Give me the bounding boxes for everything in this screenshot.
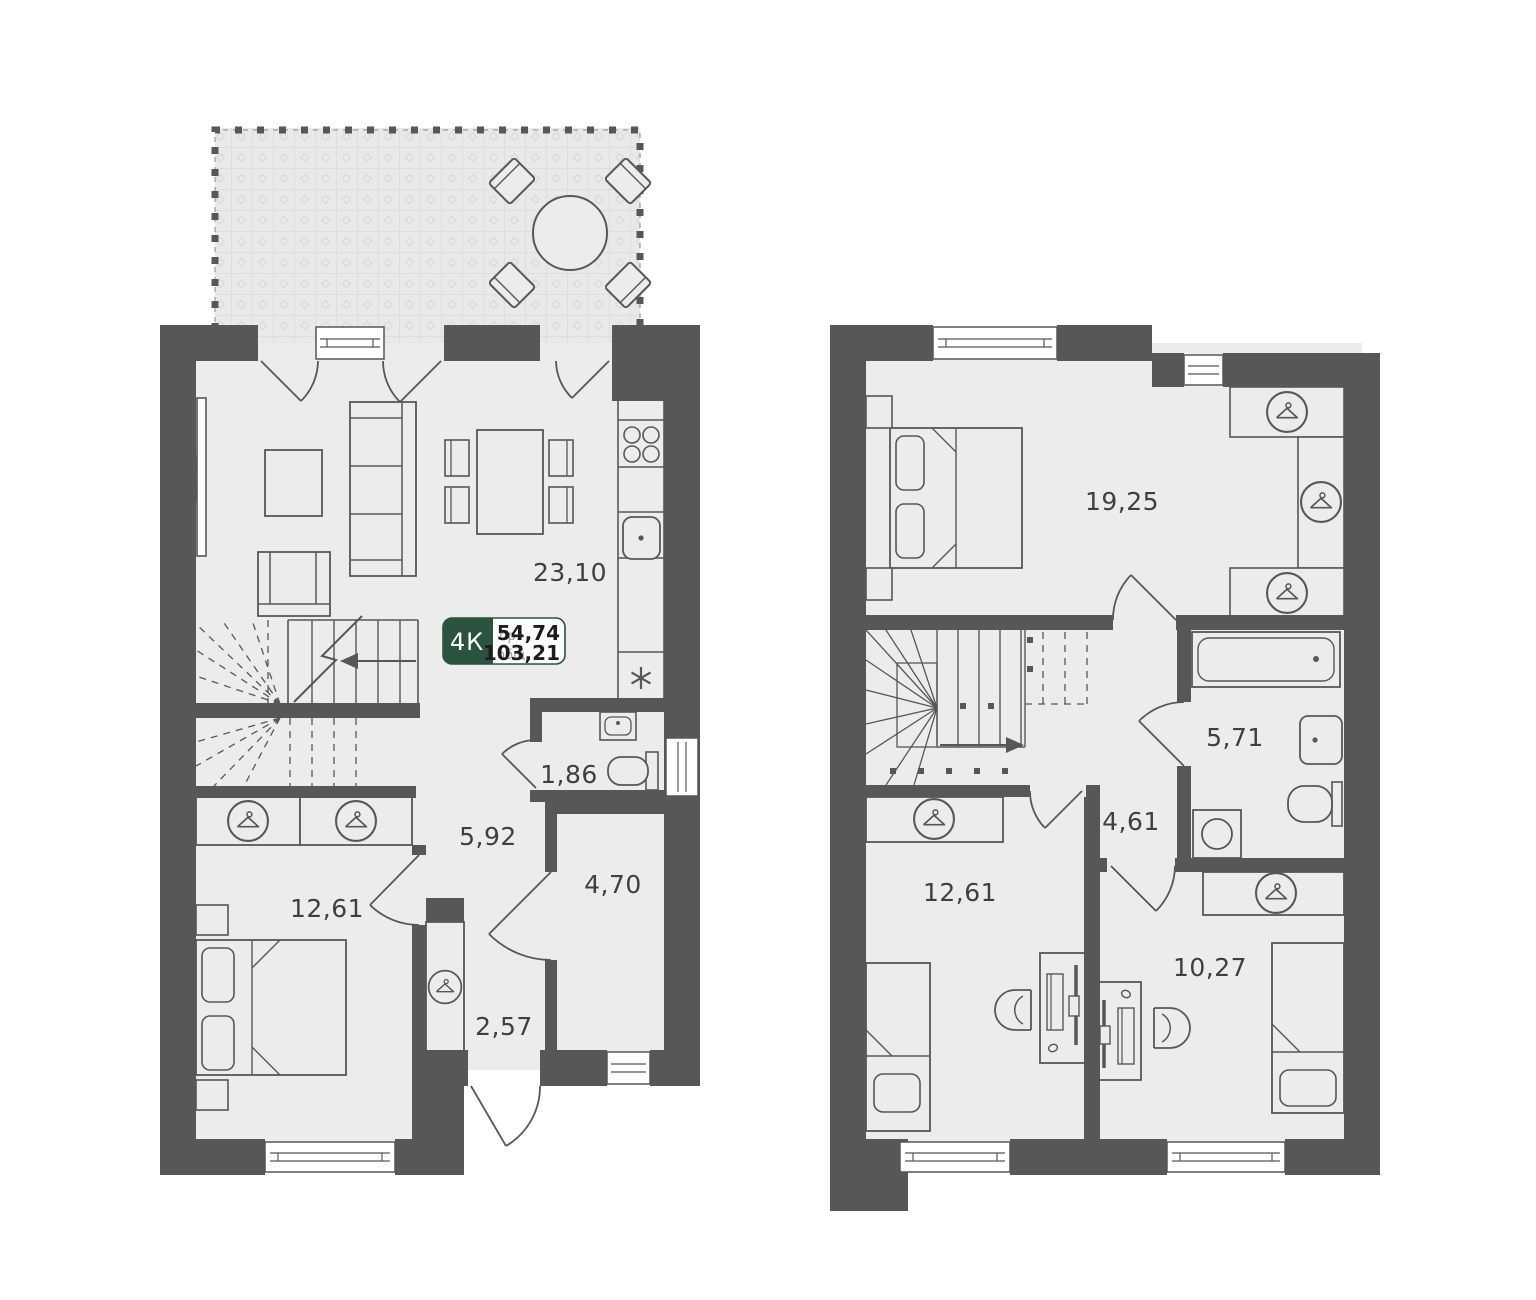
wc-toilet [608,752,658,790]
room-area-label: 19,25 [1085,487,1159,516]
armchair [258,552,330,616]
kitchen-counter [618,382,664,700]
nightstand [196,905,228,935]
wall-stub [426,898,464,922]
desk [1040,953,1087,1063]
kitchen-sink [623,517,660,559]
pillow [896,436,924,490]
bathroom-sink [1300,716,1342,764]
window [1167,1142,1285,1172]
hanger-icon [336,801,376,841]
window [607,1052,650,1084]
wc-sink [600,712,636,740]
badge-total-area: 103,21 [483,641,560,665]
bathtub [1192,632,1340,687]
pillow [202,948,234,1002]
floorplan-canvas: 23,10 1,86 5,92 4,70 2,57 12,61 4К пр. о… [0,0,1536,1300]
nightstand [196,1080,228,1110]
room-area-label: 2,57 [475,1012,533,1041]
hanger-icon [914,799,954,839]
window [900,1142,1010,1172]
nightstand [866,396,892,428]
room-area-label: 4,70 [584,870,642,899]
desk [1096,982,1141,1080]
floor2-plan: 19,25 5,71 4,61 12,61 10,27 [830,325,1380,1211]
tv [196,398,207,556]
floor1-plan: 23,10 1,86 5,92 4,70 2,57 12,61 [160,325,700,1175]
hanger-icon [1267,392,1307,432]
window [1184,355,1223,385]
pillow [1280,1070,1336,1106]
room-area-label: 5,92 [459,822,517,851]
single-bed [866,963,930,1131]
area-badge: 4К пр. общ. 54,74 103,21 [443,618,565,665]
hanger-icon [1267,573,1307,613]
washing-machine [1193,810,1241,858]
floorplan-page: 23,10 1,86 5,92 4,70 2,57 12,61 4К пр. о… [0,0,1536,1300]
badge-room-count: 4К [450,628,484,656]
window [933,327,1057,359]
window [666,738,698,796]
coffee-table [265,450,322,516]
pillow [874,1074,920,1112]
hanger-icon [1256,873,1296,913]
hanger-icon [228,801,268,841]
room-area-label: 4,61 [1102,807,1160,836]
room-area-label: 1,86 [540,760,598,789]
window [316,327,384,359]
hanger-icon [1301,482,1341,522]
pillow [202,1016,234,1070]
room-area-label: 23,10 [533,558,607,587]
room-area-label: 12,61 [923,878,997,907]
bathroom-toilet [1288,782,1342,826]
room-area-label: 5,71 [1206,723,1264,752]
room-area-label: 10,27 [1173,953,1247,982]
single-bed [1272,943,1344,1113]
window [265,1142,395,1172]
entrance-door-arc [471,1086,540,1146]
pillow [896,504,924,558]
hanger-icon [429,971,462,1004]
sofa [350,402,416,576]
nightstand [866,568,892,600]
room-area-label: 12,61 [290,894,364,923]
terrace [215,128,651,352]
